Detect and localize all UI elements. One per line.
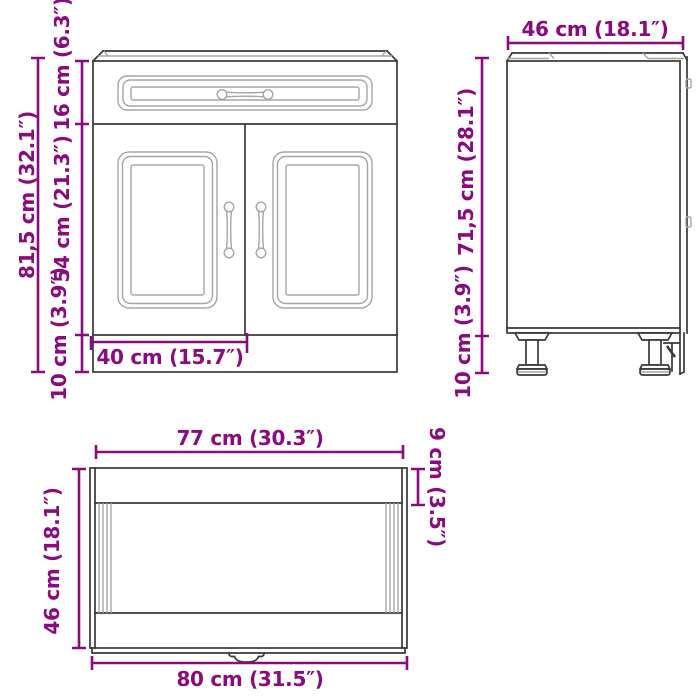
side-plinth-clip-mark (667, 346, 675, 357)
side-depth-label: 46 cm (18.1″) (521, 19, 668, 39)
front-door-width-label: 40 cm (15.7″) (96, 347, 243, 367)
front-drawer-height-label: 16 cm (6.3″) (52, 0, 72, 131)
top-depth-dimension-line (72, 469, 86, 648)
top-outer-width-label: 80 cm (31.5″) (176, 669, 323, 689)
top-inner-width-label: 77 cm (30.3″) (176, 428, 323, 448)
front-section-heights-dimension-line (75, 61, 89, 372)
side-body-height-label: 71,5 cm (28.1″) (456, 88, 476, 256)
diagram-canvas: 81,5 cm (32.1″) 16 cm (6.3″) 54 cm (21.3… (0, 0, 700, 700)
top-view-drawing (72, 445, 425, 670)
side-view-drawing (475, 36, 691, 375)
front-doors-height-label: 54 cm (21.3″) (52, 135, 72, 282)
top-front-depth-label: 9 cm (3.5″) (427, 427, 447, 547)
side-front-leg (638, 333, 672, 375)
side-rear-leg (515, 333, 549, 375)
top-depth-label: 46 cm (18.1″) (42, 487, 62, 634)
side-leg-height-label: 10 cm (3.9″) (453, 265, 473, 399)
front-total-height-label: 81,5 cm (32.1″) (17, 111, 37, 279)
side-carcass (507, 61, 680, 333)
side-front-strip (680, 333, 684, 374)
top-carcass (90, 468, 407, 648)
front-plinth-height-label: 10 cm (3.9″) (49, 267, 69, 401)
top-handle (229, 653, 264, 662)
front-view-drawing (31, 51, 397, 372)
top-front-edge-depth-dimension-line (411, 469, 425, 505)
side-countertop (507, 53, 687, 61)
